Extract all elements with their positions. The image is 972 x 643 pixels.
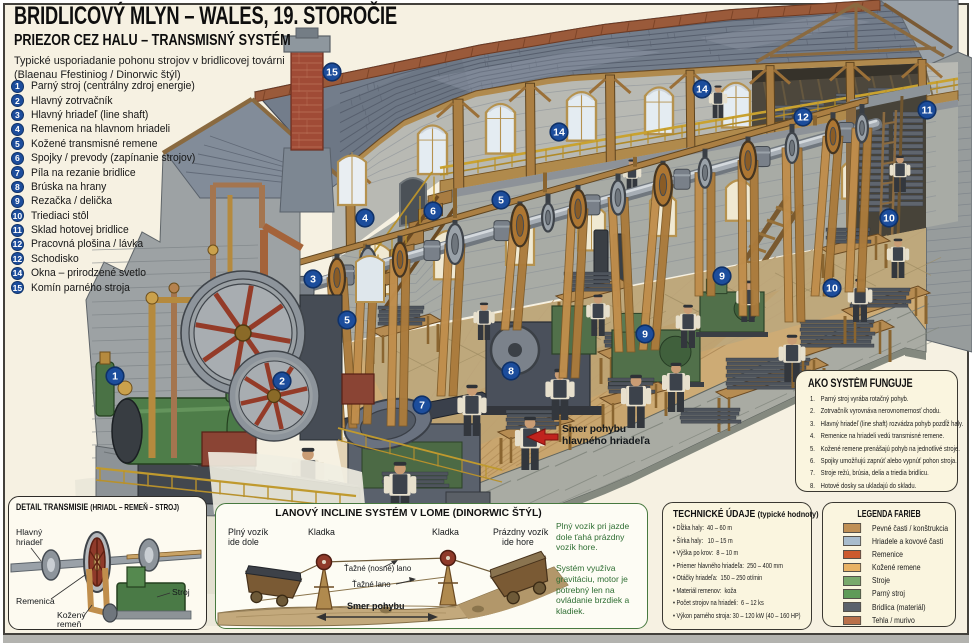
svg-text:remeň: remeň: [57, 619, 82, 628]
svg-text:5: 5: [344, 315, 350, 327]
svg-text:10: 10: [883, 213, 895, 225]
svg-text:4: 4: [362, 213, 368, 225]
svg-text:Plný vozík: Plný vozík: [228, 527, 269, 537]
svg-text:ide dole: ide dole: [228, 537, 259, 547]
svg-text:Smer pohybu: Smer pohybu: [562, 424, 626, 435]
svg-text:Ťažné (nosné) lano: Ťažné (nosné) lano: [344, 564, 412, 573]
svg-text:8: 8: [508, 366, 514, 378]
svg-text:1: 1: [112, 371, 118, 383]
svg-text:Stroj: Stroj: [172, 587, 190, 597]
svg-text:3: 3: [310, 274, 316, 286]
svg-text:Remenica: Remenica: [16, 596, 55, 606]
svg-text:Smer pohybu: Smer pohybu: [347, 601, 405, 611]
svg-text:9: 9: [642, 329, 648, 341]
svg-text:Ťažné lano: Ťažné lano: [352, 580, 391, 589]
svg-text:Kladka: Kladka: [432, 527, 459, 537]
svg-text:ide hore: ide hore: [502, 537, 534, 547]
svg-text:2: 2: [279, 376, 285, 388]
svg-text:7: 7: [419, 400, 425, 412]
svg-text:5: 5: [498, 195, 504, 207]
svg-text:10: 10: [826, 283, 838, 295]
svg-text:Prázdny vozík: Prázdny vozík: [493, 527, 549, 537]
svg-text:12: 12: [797, 112, 809, 124]
svg-text:14: 14: [553, 127, 565, 139]
svg-text:hlavného hriadeľa: hlavného hriadeľa: [562, 436, 650, 447]
svg-text:11: 11: [921, 105, 932, 117]
svg-text:hriadeľ: hriadeľ: [16, 537, 43, 547]
svg-text:14: 14: [696, 84, 708, 96]
svg-text:Kladka: Kladka: [308, 527, 335, 537]
svg-text:9: 9: [719, 271, 725, 283]
svg-text:6: 6: [430, 206, 436, 218]
svg-text:Hlavný: Hlavný: [16, 527, 43, 537]
